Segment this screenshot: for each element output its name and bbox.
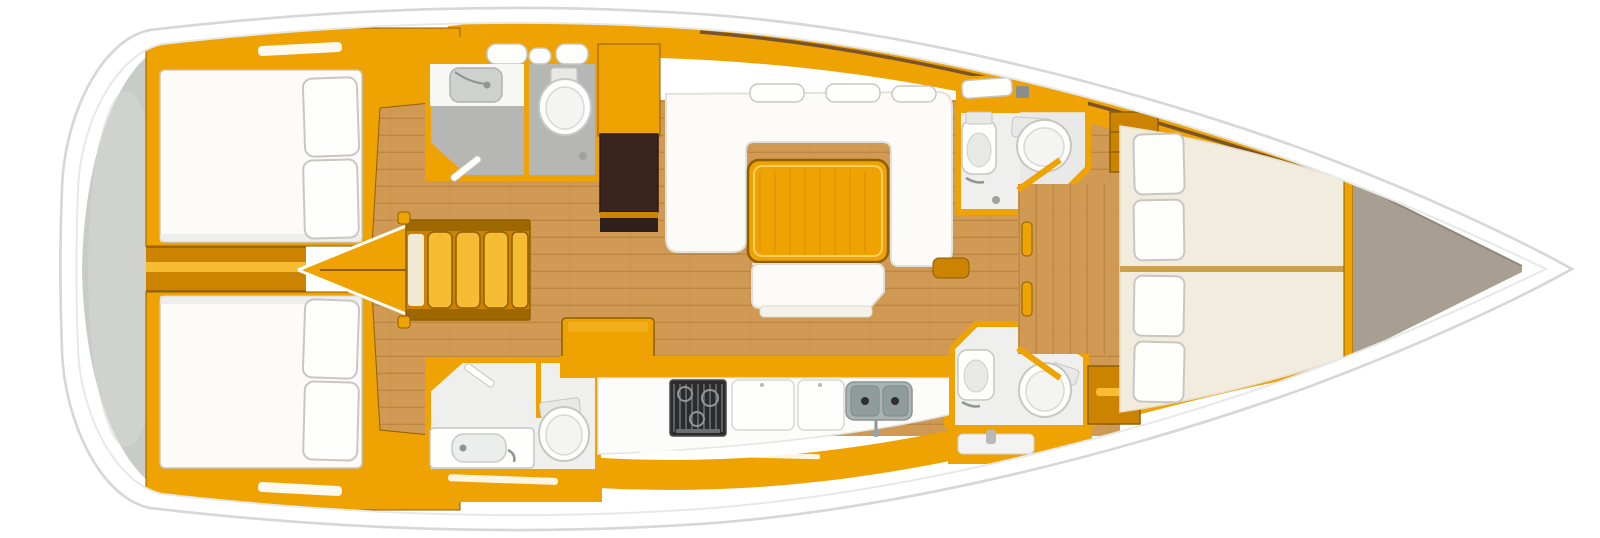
pillow xyxy=(303,381,359,460)
yacht-floorplan-stage xyxy=(0,0,1600,538)
vanity-tray xyxy=(961,77,1012,98)
pillow xyxy=(1133,341,1185,402)
washbasin xyxy=(487,44,527,64)
pillow xyxy=(1133,200,1184,261)
entry-floor xyxy=(1018,184,1120,354)
step-tread xyxy=(456,232,480,308)
stove-controls xyxy=(676,429,720,433)
stall-divider xyxy=(524,64,529,178)
door-post xyxy=(1022,282,1032,316)
floor-drain xyxy=(992,196,1000,204)
door-post xyxy=(1022,222,1032,256)
vanity-box xyxy=(1016,86,1029,98)
settee-headrest xyxy=(826,84,880,102)
galley-back-band xyxy=(560,356,952,378)
basin-bowl xyxy=(967,133,991,167)
lid-hinge xyxy=(818,383,822,387)
counter-lid xyxy=(732,380,794,430)
pillow xyxy=(303,159,359,238)
aft-cabin-divider xyxy=(146,246,306,292)
steps-rail xyxy=(406,309,530,320)
corner-cabinet-top xyxy=(568,322,648,332)
lid-hinge xyxy=(760,383,764,387)
interior xyxy=(82,28,1522,510)
pillow xyxy=(1133,133,1185,194)
shower-head xyxy=(484,82,491,89)
washbasin xyxy=(529,48,551,64)
cabinet-shelf-trim xyxy=(600,212,658,218)
faucet-base xyxy=(872,429,880,437)
faucet-knob xyxy=(460,445,467,452)
door-post xyxy=(398,212,410,224)
divider-highlight xyxy=(146,262,306,272)
yacht-floorplan xyxy=(0,0,1600,538)
berth-center-seam xyxy=(1120,266,1344,272)
step-tread xyxy=(428,232,452,308)
bench-base xyxy=(760,306,872,317)
floor-drain xyxy=(579,152,587,160)
aft-head-bottom xyxy=(426,360,602,502)
toilet-lid xyxy=(546,87,584,129)
settee-headrest xyxy=(750,84,804,102)
bow-bulkhead xyxy=(1344,178,1353,360)
base-hardware-knob xyxy=(986,430,996,444)
step-landing xyxy=(408,234,424,306)
step-tread xyxy=(512,232,528,308)
counter-lid xyxy=(798,380,844,430)
cabinet-dark-lower xyxy=(600,218,658,232)
washbasin xyxy=(556,44,588,64)
pillow xyxy=(303,77,360,157)
step-tread xyxy=(484,232,508,308)
side-step xyxy=(933,258,969,278)
toilet-lid xyxy=(546,415,582,455)
bench-seat xyxy=(752,264,884,308)
dining-table xyxy=(748,160,888,262)
settee-headrest xyxy=(892,86,936,102)
storage-cabinet-dark xyxy=(600,134,658,212)
basin-bowl xyxy=(964,360,988,392)
sink-drain xyxy=(861,397,869,405)
aft-head-top xyxy=(428,40,598,182)
sink-drain xyxy=(891,397,899,405)
door-post xyxy=(398,316,410,328)
wood-cabinet xyxy=(598,44,660,136)
pillow xyxy=(303,299,360,379)
steps-rail xyxy=(406,220,530,231)
basin-backsplash xyxy=(966,112,992,124)
pillow xyxy=(1133,276,1184,337)
